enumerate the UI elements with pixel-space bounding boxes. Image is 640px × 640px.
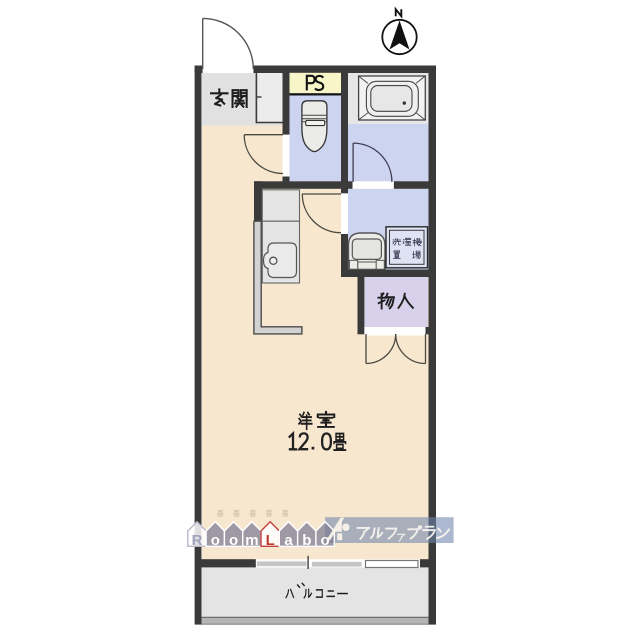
svg-text:m: m	[245, 532, 258, 549]
svg-text:b: b	[302, 532, 311, 549]
svg-text:L: L	[266, 532, 275, 549]
svg-text:R: R	[192, 532, 203, 549]
svg-text:o: o	[321, 532, 330, 549]
svg-text:o: o	[229, 532, 238, 549]
svg-text:o: o	[211, 532, 220, 549]
svg-text:a: a	[284, 532, 293, 549]
